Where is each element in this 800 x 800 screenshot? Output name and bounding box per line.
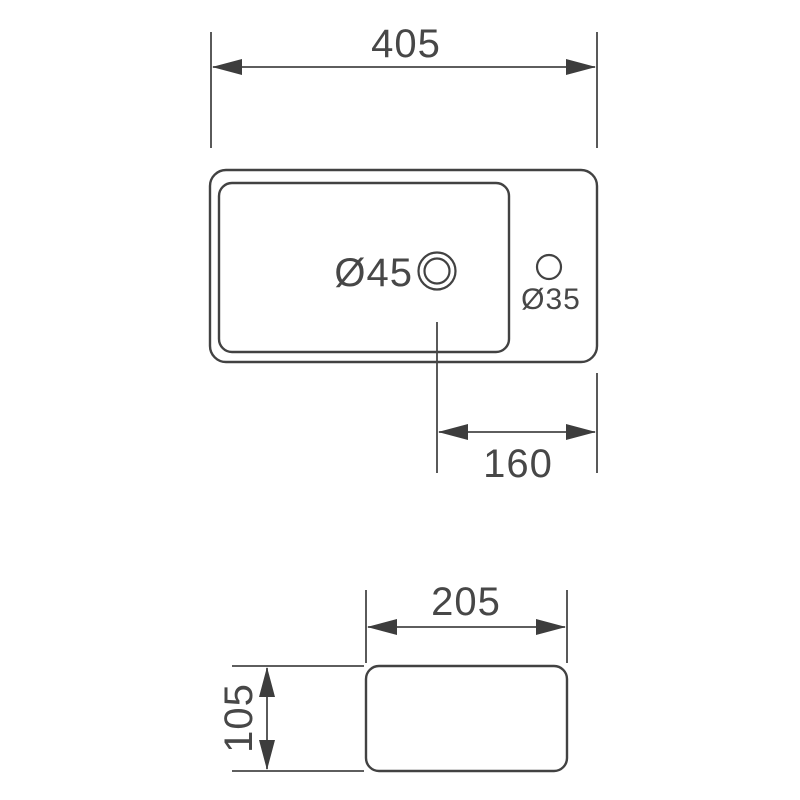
dimension-overall-width: 405	[211, 22, 597, 148]
overall-width-value: 405	[371, 22, 441, 66]
side-height-value: 105	[217, 683, 261, 753]
arrowhead-down	[259, 740, 275, 770]
faucet-diameter-label: Ø35	[521, 283, 581, 316]
drain-hole-inner-circle	[425, 259, 450, 284]
drain-diameter-label: Ø45	[334, 251, 413, 295]
arrowhead-left	[212, 59, 242, 75]
side-view	[366, 666, 567, 771]
dimension-side-height: 105	[217, 666, 364, 771]
basin-side-profile	[366, 666, 567, 771]
top-view: Ø45 Ø35	[210, 170, 597, 473]
arrowhead-right	[566, 59, 596, 75]
arrowhead-left	[367, 619, 397, 635]
arrowhead-right	[536, 619, 566, 635]
side-width-value: 205	[431, 580, 501, 624]
faucet-hole-circle	[537, 255, 561, 279]
dimension-drain-offset: 160	[438, 373, 597, 486]
drawing-canvas: Ø45 Ø35 405 160	[0, 0, 800, 800]
basin-technical-drawing: Ø45 Ø35 405 160	[0, 0, 800, 800]
arrowhead-left	[438, 424, 468, 440]
dimension-side-width: 205	[366, 580, 567, 663]
arrowhead-right	[566, 424, 596, 440]
drain-offset-value: 160	[483, 442, 553, 486]
arrowhead-up	[259, 667, 275, 697]
